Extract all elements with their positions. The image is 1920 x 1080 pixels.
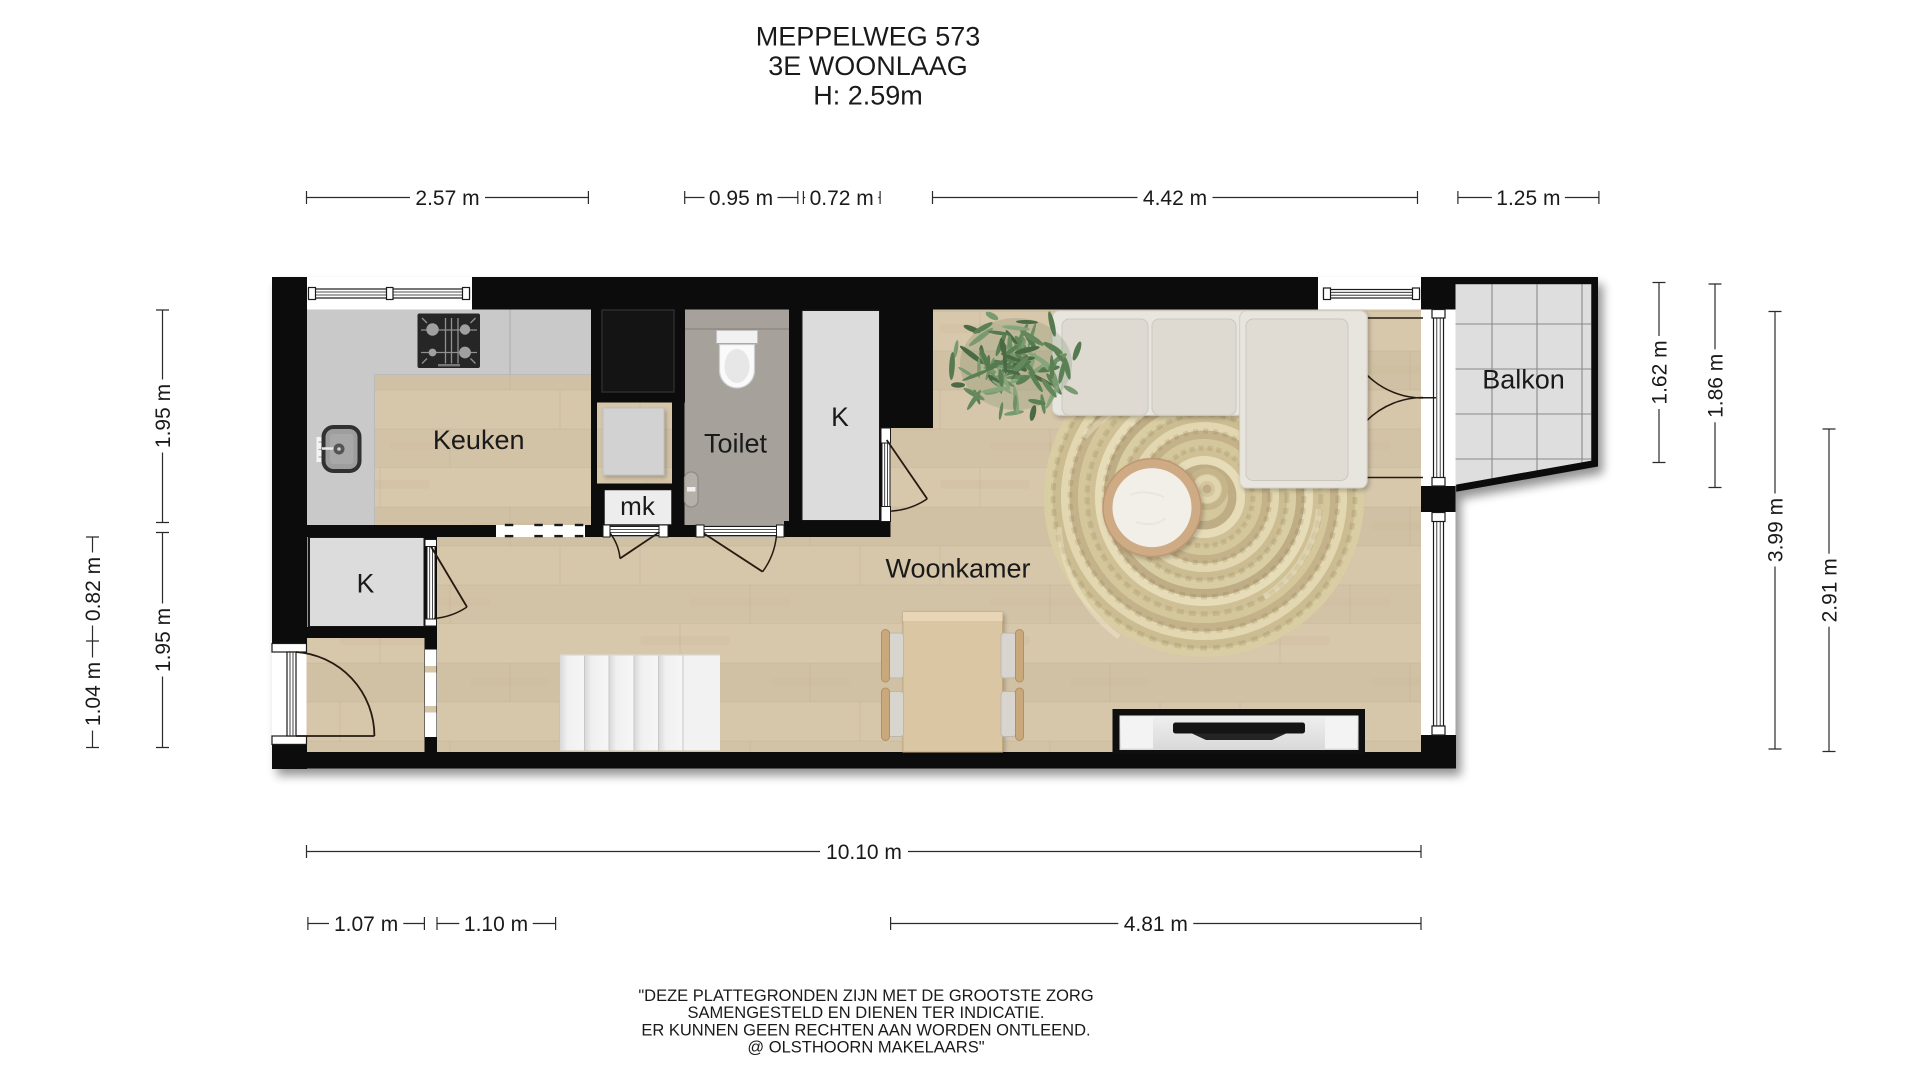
svg-text:1.04 m: 1.04 m [82, 662, 105, 726]
svg-text:1.95 m: 1.95 m [152, 384, 175, 448]
svg-text:10.10 m: 10.10 m [826, 841, 902, 864]
svg-text:mk: mk [620, 491, 656, 521]
svg-text:Balkon: Balkon [1482, 365, 1565, 395]
svg-text:0.72 m: 0.72 m [810, 187, 874, 210]
svg-text:@ OLSTHOORN MAKELAARS": @ OLSTHOORN MAKELAARS" [747, 1039, 984, 1057]
svg-text:ER KUNNEN GEEN RECHTEN AAN WOR: ER KUNNEN GEEN RECHTEN AAN WORDEN ONTLEE… [641, 1021, 1090, 1039]
svg-text:H: 2.59m: H: 2.59m [813, 81, 923, 111]
svg-text:1.62 m: 1.62 m [1649, 340, 1672, 404]
svg-text:"DEZE PLATTEGRONDEN ZIJN MET D: "DEZE PLATTEGRONDEN ZIJN MET DE GROOTSTE… [638, 987, 1093, 1005]
svg-text:Toilet: Toilet [704, 429, 768, 459]
svg-text:K: K [831, 402, 849, 432]
svg-text:0.95 m: 0.95 m [709, 187, 773, 210]
svg-text:Keuken: Keuken [433, 425, 525, 455]
svg-text:1.10 m: 1.10 m [464, 913, 528, 936]
svg-text:4.81 m: 4.81 m [1124, 913, 1188, 936]
svg-text:SAMENGESTELD EN DIENEN TER IND: SAMENGESTELD EN DIENEN TER INDICATIE. [688, 1004, 1045, 1022]
svg-text:1.95 m: 1.95 m [152, 608, 175, 672]
svg-text:1.07 m: 1.07 m [334, 913, 398, 936]
svg-text:0.82 m: 0.82 m [82, 557, 105, 621]
svg-text:K: K [357, 569, 375, 599]
svg-text:MEPPELWEG 573: MEPPELWEG 573 [756, 22, 981, 52]
svg-text:Woonkamer: Woonkamer [885, 554, 1030, 584]
svg-text:1.25 m: 1.25 m [1496, 187, 1560, 210]
svg-text:3.99 m: 3.99 m [1765, 498, 1788, 562]
svg-text:4.42 m: 4.42 m [1143, 187, 1207, 210]
svg-text:1.86 m: 1.86 m [1705, 354, 1728, 418]
svg-text:2.91 m: 2.91 m [1819, 558, 1842, 622]
svg-text:2.57 m: 2.57 m [415, 187, 479, 210]
svg-text:3E WOONLAAG: 3E WOONLAAG [768, 51, 968, 81]
